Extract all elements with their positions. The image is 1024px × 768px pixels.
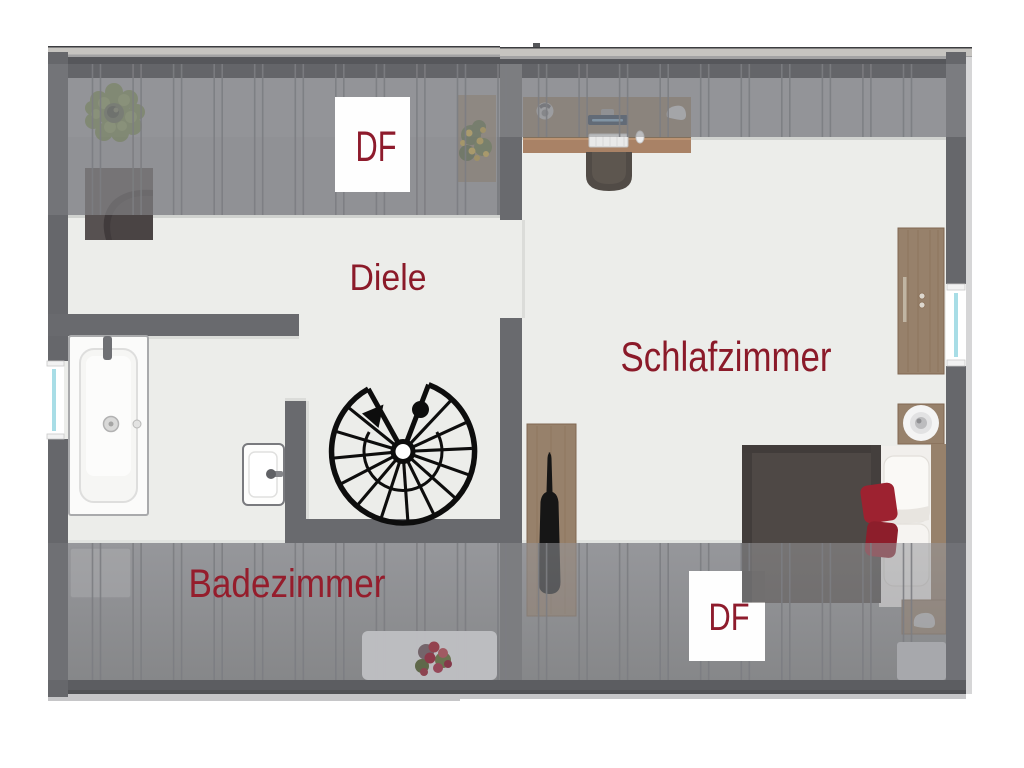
svg-text:Diele: Diele [350,257,427,298]
svg-text:DF: DF [709,597,750,639]
svg-text:Schlafzimmer: Schlafzimmer [621,333,832,380]
svg-text:Badezimmer: Badezimmer [189,562,386,606]
svg-text:DF: DF [356,123,397,171]
